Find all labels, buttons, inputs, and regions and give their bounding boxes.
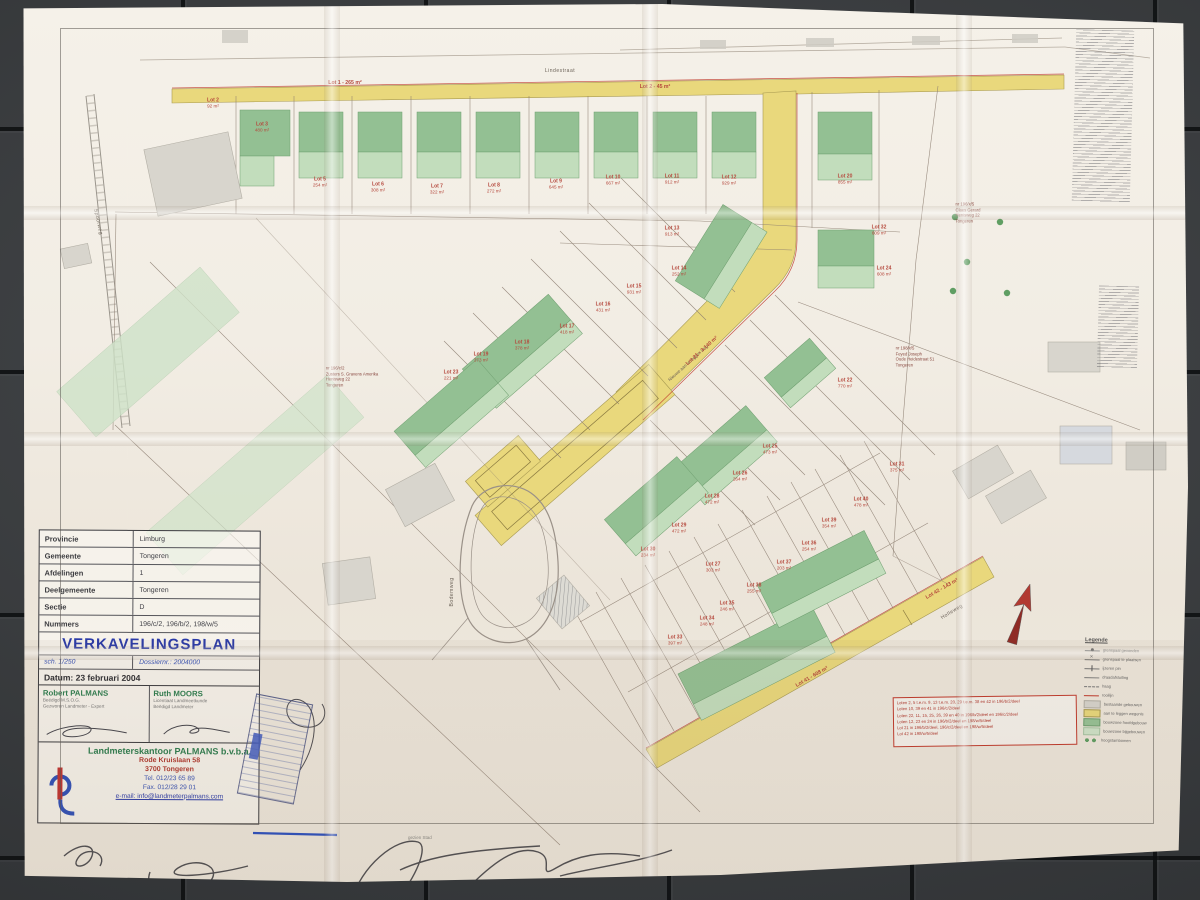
lot-label: Lot 34248 m² xyxy=(700,615,715,627)
tree-icons xyxy=(950,214,1010,296)
lot-label: Lot 11912 m² xyxy=(665,173,679,185)
stamp-date-chip xyxy=(249,733,263,760)
surveyor-left-signature xyxy=(43,720,133,740)
scale-dossier-row: sch. 1/250 Dossiernr.: 2004000 xyxy=(39,655,259,670)
lot-label: Lot 3480 m² xyxy=(255,121,269,133)
s-red-icon xyxy=(1084,692,1099,698)
tile-floor: Lot 292 m²Lot 3480 m²Lot 5254 m²Lot 6308… xyxy=(0,0,1200,900)
s-sw-gr-icon xyxy=(1084,700,1101,708)
lot-label: Lot 35246 m² xyxy=(720,600,735,612)
company-block: Landmeterskantoor PALMANS b.v.b.a. Rode … xyxy=(38,742,258,823)
blue-pen-mark xyxy=(253,833,337,835)
coordinate-list-2 xyxy=(1097,285,1139,368)
lot-label: Lot 19373 m² xyxy=(474,351,489,363)
legend-title: Legende xyxy=(1085,637,1169,645)
s-line-icon xyxy=(1084,674,1099,680)
plan-date: Datum: 23 februari 2004 xyxy=(39,669,259,686)
s-dots-icon xyxy=(1083,737,1098,743)
lot-label: Lot 40478 m² xyxy=(854,496,869,508)
title-block-row: Afdelingen1 xyxy=(39,564,259,582)
lot-label: Lot 13913 m² xyxy=(665,225,680,237)
title-block: ProvincieLimburg GemeenteTongeren Afdeli… xyxy=(37,529,261,824)
road-label: Lot 2 - 45 m² xyxy=(640,84,671,90)
surveyors-row: Robert PALMANS Beëdigd M.S.O.G. Gezworen… xyxy=(39,685,259,743)
lot-label: Lot 38255 m² xyxy=(747,582,762,594)
company-email: e-mail: info@landmeterpalmans.com xyxy=(84,792,254,800)
s-dash-icon xyxy=(1084,683,1099,689)
legend-row: hoogstambomen xyxy=(1083,735,1167,746)
lot-label: Lot 36254 m² xyxy=(802,540,817,552)
plan-stage: Lot 292 m²Lot 3480 m²Lot 5254 m²Lot 6308… xyxy=(0,0,1200,900)
lot-label: Lot 30234 m² xyxy=(641,546,656,558)
lot-label: Lot 32609 m² xyxy=(872,224,887,236)
lot-label: Lot 23221 m² xyxy=(444,369,459,381)
lot-label: Lot 15931 m² xyxy=(627,283,642,295)
company-name: Landmeterskantoor PALMANS b.v.b.a. xyxy=(85,746,255,757)
plan-title: VERKAVELINGSPLAN xyxy=(39,632,259,656)
garden-zones xyxy=(57,267,364,575)
lot-label: Lot 31375 m² xyxy=(890,461,905,473)
street-name: Bodemweg xyxy=(449,577,455,606)
owner-note: nr 198/x/5Feyed JosephOude Heidestraat 5… xyxy=(896,346,935,369)
lot-label: Lot 8272 m² xyxy=(487,182,501,194)
s-cross-icon xyxy=(1085,656,1100,662)
title-block-row: ProvincieLimburg xyxy=(40,530,260,548)
dossier-number: Dossiernr.: 2004000 xyxy=(133,656,259,670)
lot-label: Lot 14252 m² xyxy=(672,265,687,277)
lot-label: Lot 39354 m² xyxy=(822,517,837,529)
cadastral-notes-box: Loten 2, 5 t.e.m. 9, 13 t.e.m. 20, 29 t.… xyxy=(893,695,1078,748)
lot-label: Lot 33397 m² xyxy=(668,634,683,646)
notes-line: Lot 42 in 198/w/5/deel xyxy=(897,729,1073,738)
lot-label: Lot 26264 m² xyxy=(733,470,748,482)
lot-label: Lot 5254 m² xyxy=(313,176,327,188)
s-dot-icon xyxy=(1085,647,1100,653)
s-sw-lg-icon xyxy=(1083,727,1100,735)
s-tick-icon xyxy=(1084,665,1099,671)
surveyor-right: Ruth MOORS Licentiaat Landmeetkunde Beëd… xyxy=(148,686,259,743)
lot-label: Lot 27303 m² xyxy=(706,561,721,573)
scale-label: sch. 1/250 xyxy=(39,655,133,668)
owner-note: nr 196/c/2Zusters S. Gravens AmerikaHeni… xyxy=(326,366,378,389)
owner-note: nr 196/x/5Claes GerardHenisweg 22Tongere… xyxy=(956,202,981,225)
lot-label: Lot 9645 m² xyxy=(549,178,563,190)
s-sw-y-icon xyxy=(1083,709,1100,717)
margin-note: gezien Stad xyxy=(408,835,432,840)
street-name: Lindestraat xyxy=(545,68,575,74)
surveyor-left: Robert PALMANS Beëdigd M.S.O.G. Gezworen… xyxy=(39,685,149,742)
lot-label: Lot 17418 m² xyxy=(560,323,575,335)
legend: Legende grenspaal gevondengrenspaal te p… xyxy=(1083,637,1169,746)
north-arrow-icon xyxy=(1003,581,1038,646)
s-sw-g-icon xyxy=(1083,718,1100,726)
lot-label: Lot 24608 m² xyxy=(877,265,892,277)
lot-label: Lot 16431 m² xyxy=(596,301,611,313)
title-block-row: GemeenteTongeren xyxy=(40,547,260,565)
lot-label: Lot 12929 m² xyxy=(722,174,737,186)
lot-label: Lot 6308 m² xyxy=(371,181,385,193)
surveyor-right-signature xyxy=(157,722,237,740)
plan-paper: Lot 292 m²Lot 3480 m²Lot 5254 m²Lot 6308… xyxy=(20,4,1188,882)
coordinate-list xyxy=(1072,29,1134,202)
lot-label: Lot 25473 m² xyxy=(763,443,778,455)
lot-label: Lot 37203 m² xyxy=(777,559,792,571)
lot-label: Lot 292 m² xyxy=(207,97,219,109)
lot-label: Lot 29472 m² xyxy=(672,522,687,534)
lot-label: Lot 10667 m² xyxy=(606,174,621,186)
existing-street-lines xyxy=(140,38,1150,60)
street-furniture xyxy=(222,30,1038,49)
lot-label: Lot 22770 m² xyxy=(838,377,853,389)
company-logo xyxy=(41,765,81,819)
road-label: Lot 1 - 265 m² xyxy=(328,80,361,86)
title-block-row: Nummers196/c/2, 196/b/2, 198/w/5 xyxy=(39,615,259,633)
lot-label: Lot 20855 m² xyxy=(838,173,853,185)
title-block-row: DeelgemeenteTongeren xyxy=(39,581,259,599)
lot-label: Lot 7322 m² xyxy=(430,183,444,195)
lot-label: Lot 18378 m² xyxy=(515,339,530,351)
lot-label: Lot 28472 m² xyxy=(705,493,720,505)
title-block-row: SectieD xyxy=(39,598,259,616)
